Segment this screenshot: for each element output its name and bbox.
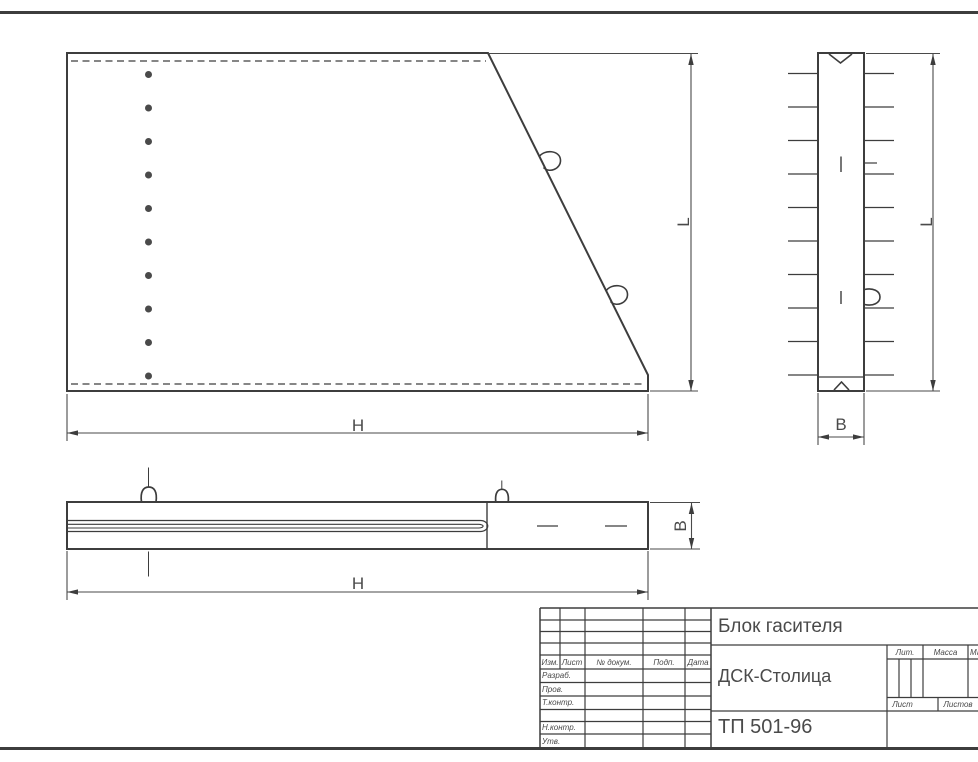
dim-label-H-bottom: H: [347, 575, 369, 593]
dim-label-H-front: H: [347, 417, 369, 435]
company-name: ДСК-Столица: [718, 667, 831, 686]
mass-label: Масса: [934, 648, 958, 657]
side-view-dimensions: [818, 54, 940, 446]
slot-outer: [67, 521, 488, 532]
document-number: ТП 501-96: [718, 717, 812, 738]
row-nkontr: Н.контр.: [542, 723, 576, 732]
bottom-view-dimensions: [67, 503, 700, 601]
slot-inner: [67, 524, 483, 528]
col-izm: Изм.: [541, 658, 558, 667]
dim-label-L-front: L: [675, 211, 693, 233]
dim-label-B-bottom: B: [672, 515, 690, 537]
dimension-arrows: [67, 54, 694, 436]
lifting-hook: [865, 289, 881, 305]
dimension-arrows: [818, 54, 936, 440]
row-tkontr: Т.контр.: [542, 698, 574, 707]
left-ticks: [788, 74, 817, 376]
bottom-view: [67, 468, 648, 577]
hook-centerlines: [149, 468, 502, 577]
top-notch: [829, 54, 852, 63]
dim-label-B-side: B: [830, 416, 852, 434]
sheets-label: Листов: [943, 700, 972, 709]
drawing-sheet: H L L B B H Блок гасителя ДСК-Столица ТП…: [0, 0, 978, 762]
sheet-frame: [0, 13, 978, 749]
side-view: [788, 53, 894, 391]
front-view-dimensions: [67, 54, 698, 442]
sheet-label: Лист: [892, 700, 913, 709]
row-utv: Утв.: [542, 737, 560, 746]
dim-label-L-side: L: [918, 211, 936, 233]
col-data: Дата: [687, 658, 708, 667]
drawing-title: Блок гасителя: [718, 617, 843, 637]
bolt-holes: [145, 71, 152, 380]
drawing-canvas: [0, 0, 978, 762]
right-ticks: [865, 74, 894, 376]
scale-label: Масштаб: [970, 648, 978, 657]
row-razrab: Разраб.: [542, 671, 571, 680]
lifting-hook: [496, 489, 509, 502]
lifting-hook: [141, 487, 156, 502]
col-podp: Подп.: [653, 658, 674, 667]
bottom-notch: [834, 382, 849, 390]
front-view: [67, 53, 648, 391]
row-prov: Пров.: [542, 685, 563, 694]
col-dokum: № докум.: [596, 658, 631, 667]
lit-label: Лит.: [896, 648, 915, 657]
col-list: Лист: [562, 658, 583, 667]
